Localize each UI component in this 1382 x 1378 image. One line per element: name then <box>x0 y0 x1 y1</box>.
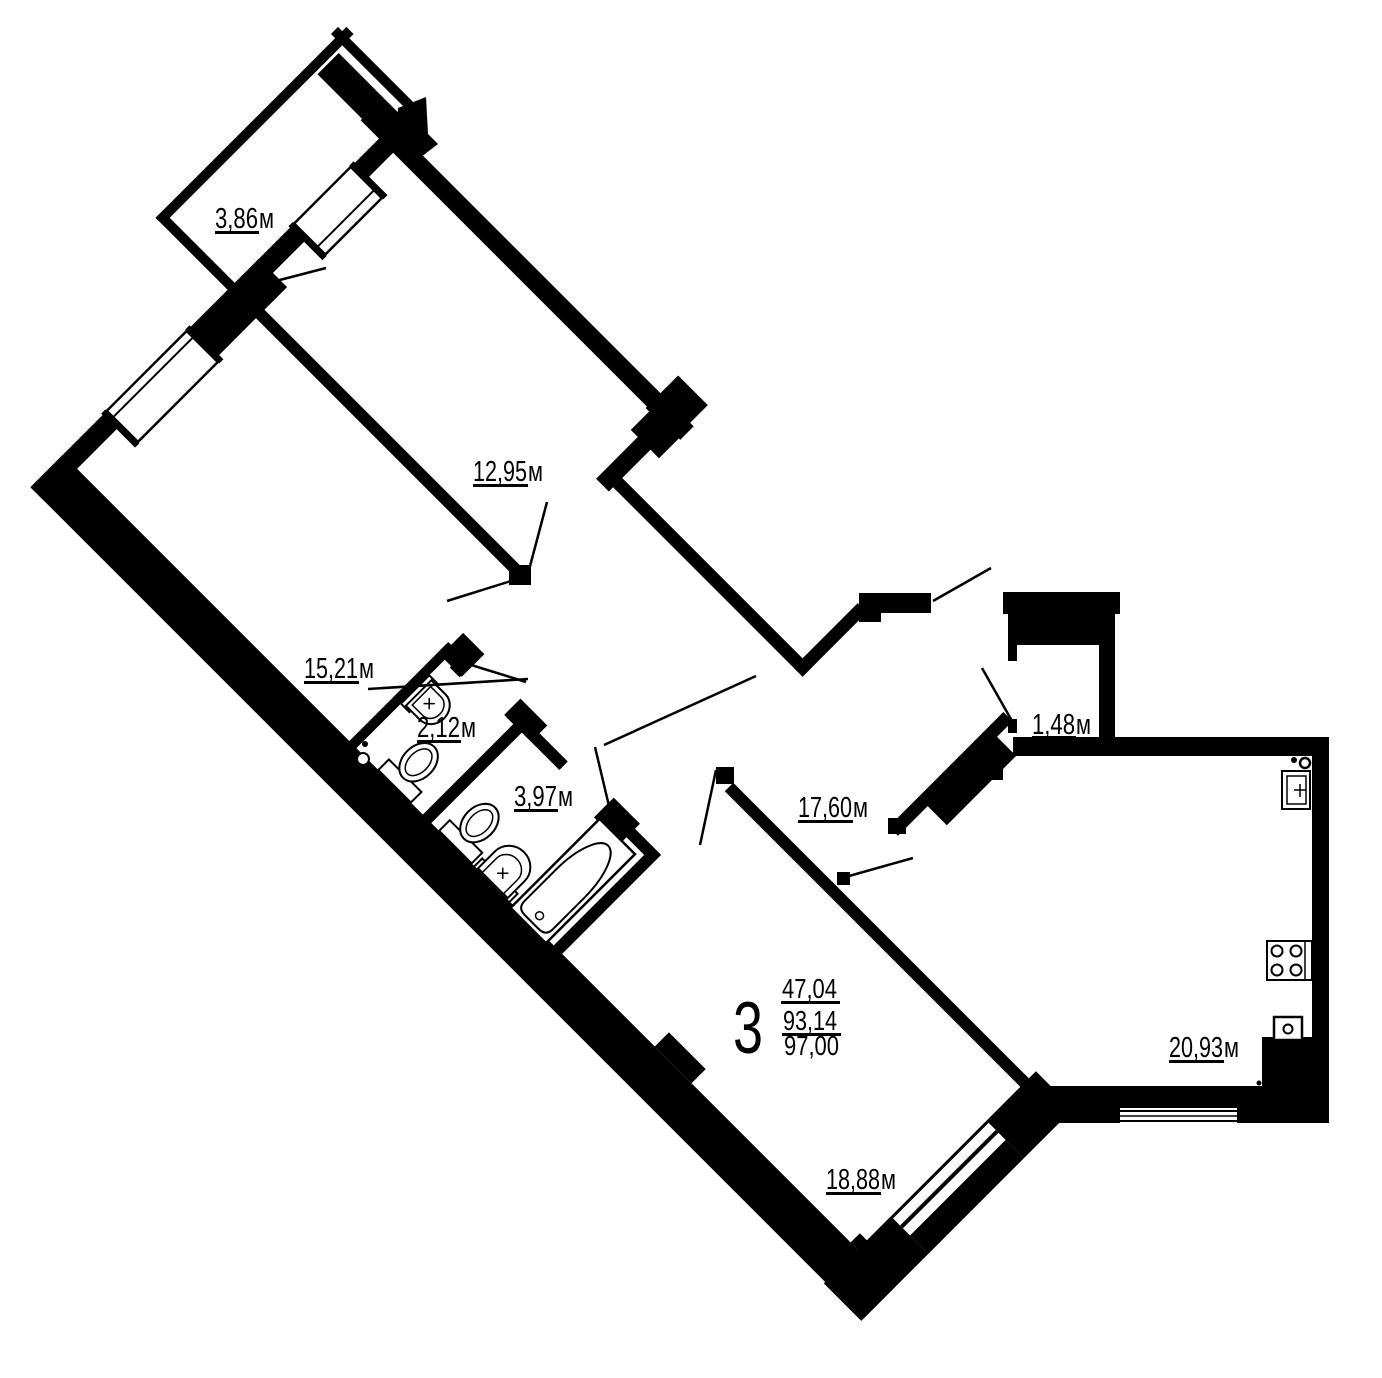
svg-text:м: м <box>1076 709 1091 741</box>
svg-text:м: м <box>461 712 476 744</box>
svg-text:15,21: 15,21 <box>304 653 358 685</box>
svg-text:м: м <box>881 1164 896 1196</box>
svg-text:47,04: 47,04 <box>782 973 837 1004</box>
svg-text:м: м <box>359 653 374 685</box>
svg-text:м: м <box>1224 1032 1239 1064</box>
svg-text:17,60: 17,60 <box>798 792 852 824</box>
svg-text:12,95: 12,95 <box>473 456 527 488</box>
svg-text:2,12: 2,12 <box>417 712 460 744</box>
svg-text:18,88: 18,88 <box>826 1164 880 1196</box>
svg-text:3,86: 3,86 <box>215 203 258 235</box>
svg-text:3: 3 <box>733 988 763 1069</box>
svg-text:м: м <box>558 781 573 813</box>
svg-text:м: м <box>853 792 868 824</box>
svg-text:м: м <box>259 203 274 235</box>
svg-text:97,00: 97,00 <box>784 1030 839 1061</box>
svg-text:м: м <box>528 456 543 488</box>
svg-text:3,97: 3,97 <box>514 781 557 813</box>
svg-text:20,93: 20,93 <box>1169 1032 1223 1064</box>
